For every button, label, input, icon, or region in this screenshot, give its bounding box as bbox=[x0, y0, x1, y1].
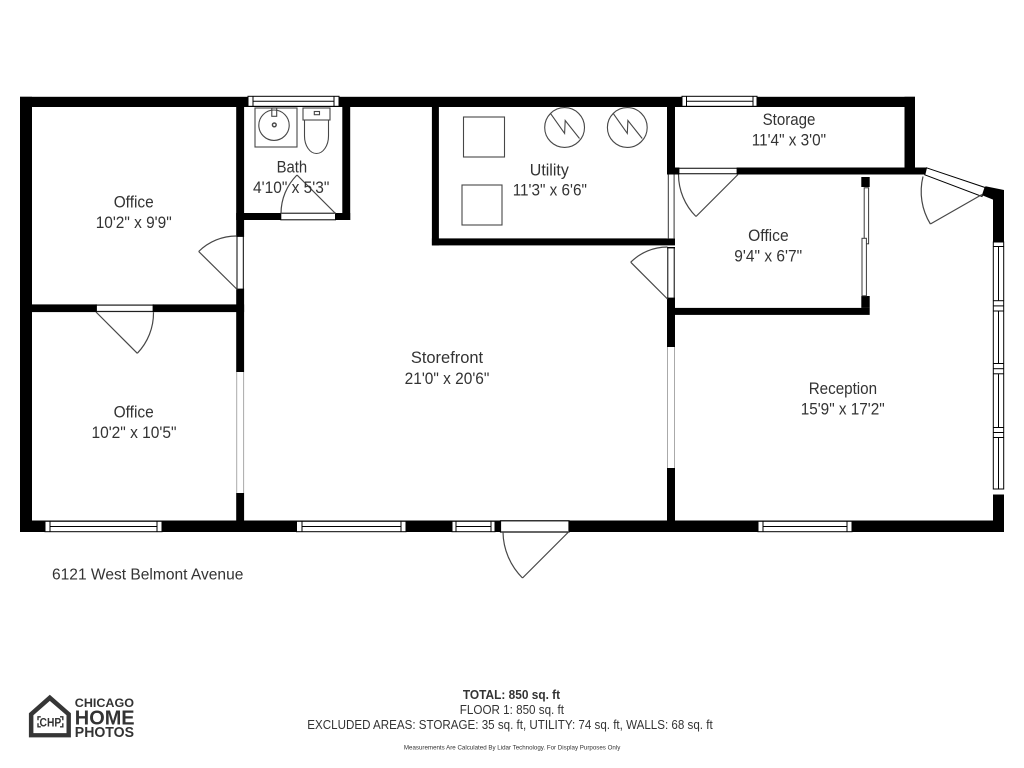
svg-text:Measurements Are Calculated By: Measurements Are Calculated By Lidar Tec… bbox=[404, 744, 621, 751]
svg-text:10'2" x 9'9": 10'2" x 9'9" bbox=[96, 214, 172, 232]
svg-text:10'2" x 10'5": 10'2" x 10'5" bbox=[91, 424, 176, 442]
svg-text:4'10" x 5'3": 4'10" x 5'3" bbox=[253, 179, 329, 197]
svg-text:21'0" x 20'6": 21'0" x 20'6" bbox=[405, 370, 490, 388]
svg-text:CHP: CHP bbox=[40, 716, 62, 730]
svg-text:EXCLUDED AREAS: STORAGE: 35 sq: EXCLUDED AREAS: STORAGE: 35 sq. ft, UTIL… bbox=[307, 717, 713, 732]
svg-text:Bath: Bath bbox=[277, 159, 308, 177]
svg-text:PHOTOS: PHOTOS bbox=[75, 725, 135, 741]
svg-text:Office: Office bbox=[748, 227, 789, 245]
svg-text:FLOOR 1: 850 sq. ft: FLOOR 1: 850 sq. ft bbox=[460, 702, 565, 717]
svg-text:Storage: Storage bbox=[763, 111, 816, 129]
svg-text:Utility: Utility bbox=[530, 162, 570, 180]
svg-text:15'9" x 17'2": 15'9" x 17'2" bbox=[801, 401, 885, 419]
svg-text:Office: Office bbox=[114, 193, 154, 211]
svg-text:6121 West Belmont Avenue: 6121 West Belmont Avenue bbox=[52, 567, 243, 584]
svg-text:Reception: Reception bbox=[809, 380, 877, 398]
svg-text:11'4" x 3'0": 11'4" x 3'0" bbox=[752, 131, 827, 149]
svg-text:Storefront: Storefront bbox=[411, 349, 484, 367]
svg-text:TOTAL: 850 sq. ft: TOTAL: 850 sq. ft bbox=[463, 687, 561, 702]
svg-text:9'4" x 6'7": 9'4" x 6'7" bbox=[734, 248, 802, 266]
svg-text:Office: Office bbox=[114, 404, 154, 422]
svg-text:11'3" x 6'6": 11'3" x 6'6" bbox=[513, 182, 587, 200]
